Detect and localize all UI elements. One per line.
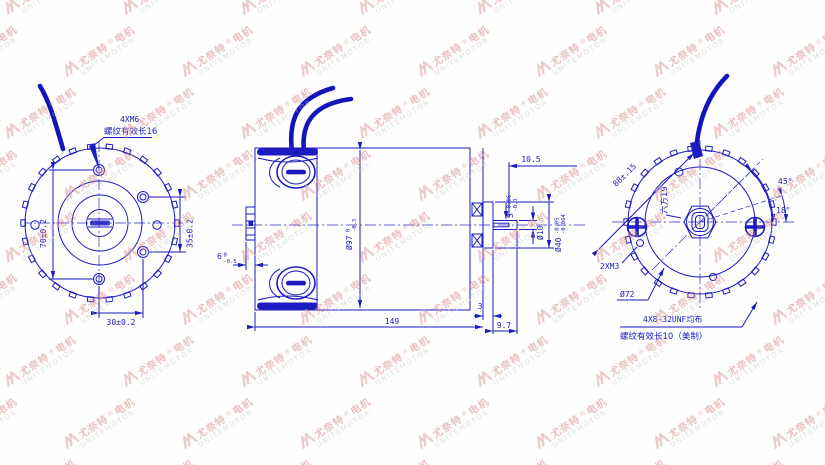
dim-length: 149 — [385, 317, 400, 326]
dim-key-width: 3 -0.06 -0.1 — [506, 195, 519, 218]
motor-technical-drawing: 4XM6 螺纹有效长16 70±0.2 35±0.2 30±0.2 — [0, 0, 825, 465]
lead-wire — [696, 76, 727, 152]
svg-text:Ø97: Ø97 — [344, 235, 354, 250]
d72-label: Ø72 — [620, 289, 635, 299]
dim-45deg: 45° — [778, 177, 792, 186]
svg-text:0: 0 — [346, 229, 352, 232]
dim-step: 3 — [478, 302, 483, 311]
svg-text:-0.1: -0.1 — [513, 198, 519, 211]
svg-text:-0.3: -0.3 — [352, 219, 358, 232]
dim-18deg: 18° — [776, 206, 790, 215]
svg-text:-0.064: -0.064 — [561, 213, 567, 234]
svg-text:-0.06: -0.06 — [507, 195, 513, 212]
hex-label: 六方19 — [659, 186, 670, 214]
svg-text:Ø40: Ø40 — [553, 237, 563, 252]
brush-cap-icon — [270, 156, 315, 299]
svg-text:Ø10: Ø10 — [535, 225, 545, 240]
m3-label: 2XM3 — [600, 262, 619, 271]
unf-note2: 螺纹有效长10（美制） — [620, 331, 707, 342]
rear-view: 88±.15 六方19 45° 18° 2XM3 Ø72 4X8-32UNF均布… — [599, 76, 795, 342]
svg-text:0: 0 — [224, 253, 227, 259]
svg-text:6: 6 — [217, 252, 222, 261]
front-note2: 螺纹有效长16 — [104, 126, 157, 137]
svg-text:-0.05: -0.05 — [555, 217, 561, 234]
dim-connector: 6 0 -0.5 — [217, 252, 237, 265]
svg-text:-0.5: -0.5 — [224, 259, 237, 265]
dim-shaft-len: 9.7 — [497, 321, 512, 330]
dim-35: 35±0.2 — [186, 219, 195, 248]
dim-30: 30±0.2 — [107, 318, 136, 327]
dim-70: 70±0.2 — [39, 219, 48, 248]
dim-body-dia: Ø97 0 -0.3 — [344, 219, 358, 250]
dim-boss-dia: Ø40 -0.05 -0.064 — [553, 213, 567, 252]
svg-text:3: 3 — [506, 213, 515, 218]
drawing-canvas: 4XM6 螺纹有效长16 70±0.2 35±0.2 30±0.2 — [0, 0, 825, 465]
lead-wire — [40, 86, 63, 149]
terminal-block — [246, 207, 255, 240]
front-view: 4XM6 螺纹有效长16 70±0.2 35±0.2 30±0.2 — [20, 86, 195, 327]
dim-shaft-dia: Ø10 — [535, 225, 545, 240]
unf-note1: 4X8-32UNF均布 — [643, 314, 702, 324]
front-note1: 4XM6 — [120, 115, 139, 124]
side-view: Ø97 0 -0.3 6 0 -0.5 149 3 9.7 10.5 — [217, 88, 586, 334]
lead-wire — [304, 99, 351, 152]
dim-key-len: 10.5 — [521, 155, 540, 164]
